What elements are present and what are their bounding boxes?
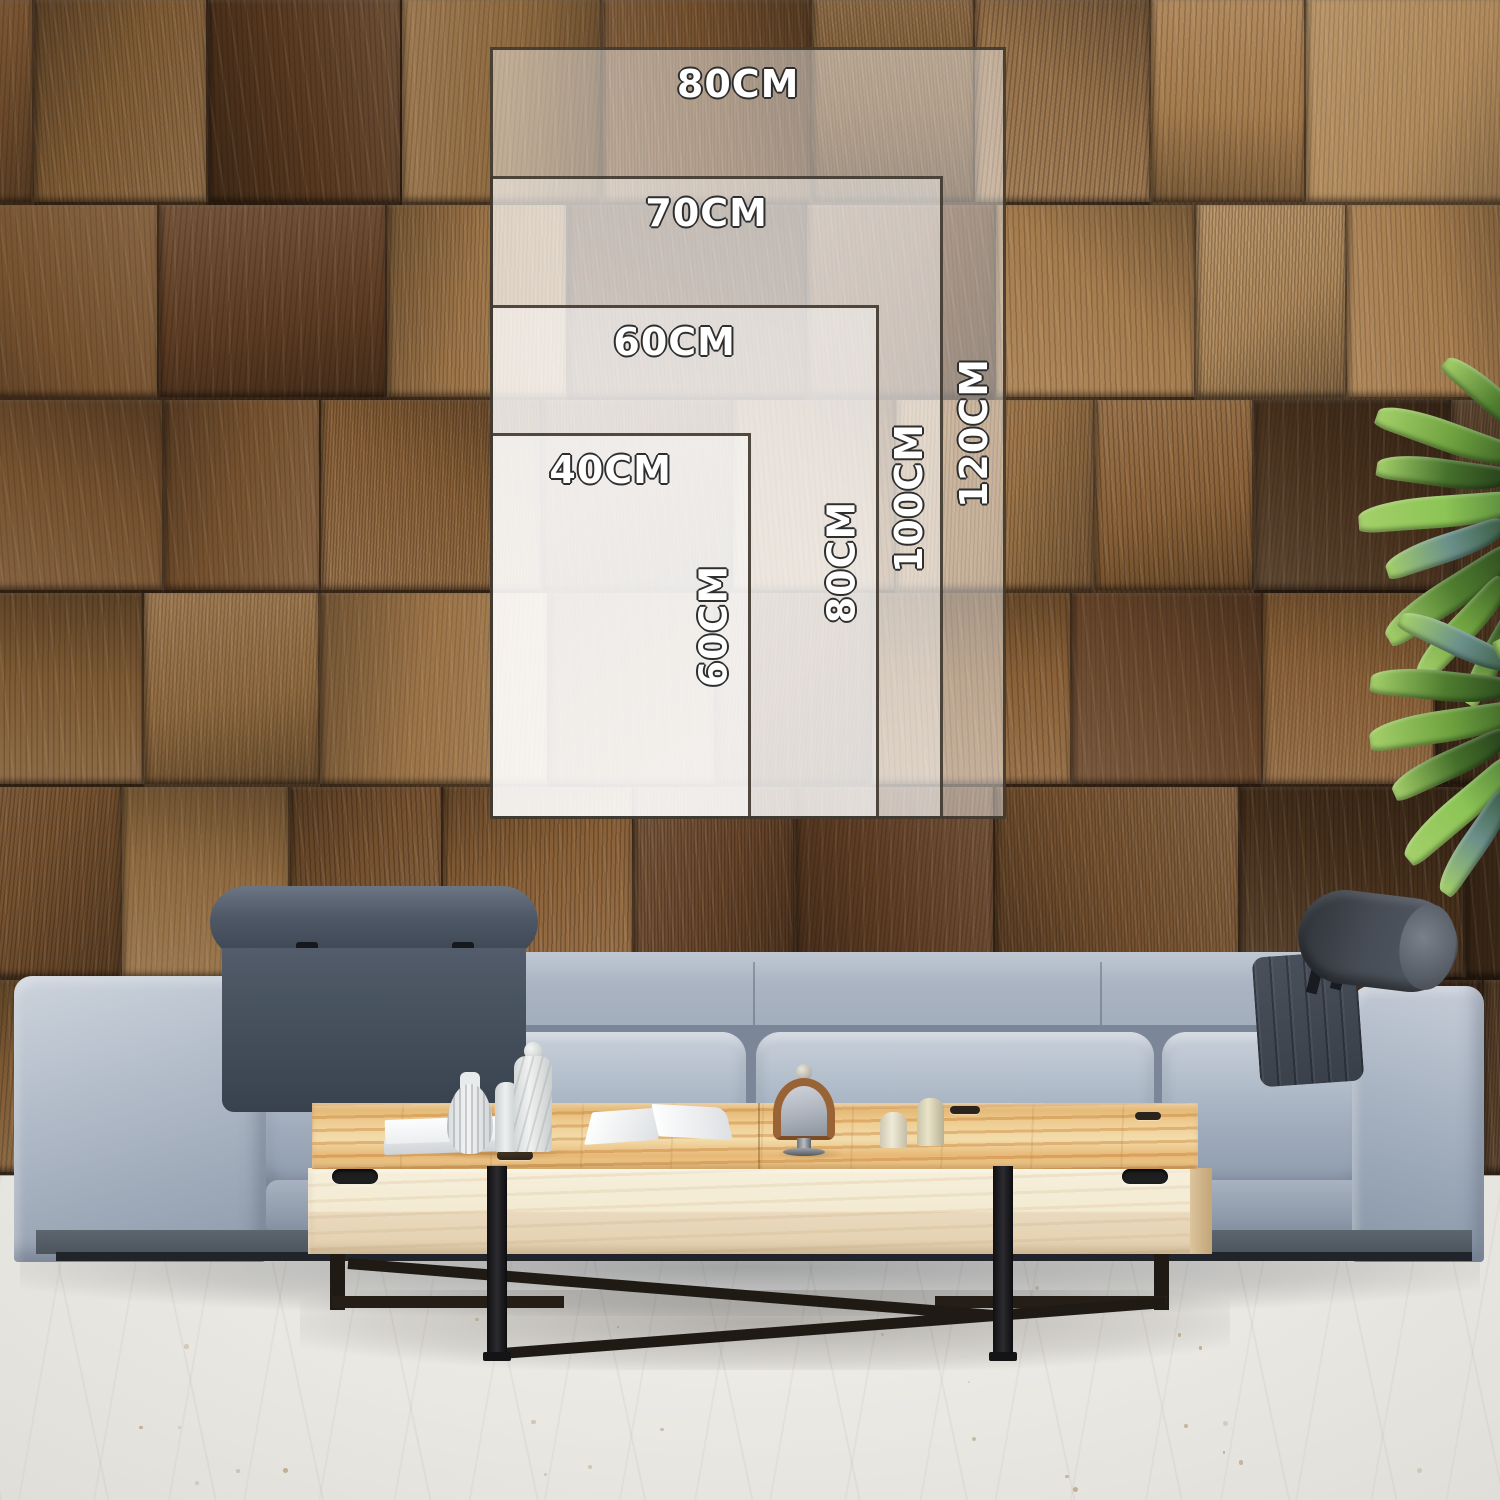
wood-block (733, 400, 897, 593)
living-room-size-guide-photo: 80CM 120CM 70CM 100CM 60CM 80CM 40CM 60C… (0, 0, 1500, 1500)
floor-speckle (1417, 1468, 1422, 1473)
wood-block (542, 400, 732, 593)
table-leg-post (487, 1166, 507, 1356)
table-top-seam (758, 1103, 760, 1169)
wood-block (164, 400, 322, 593)
floor-speckle (178, 1426, 181, 1429)
table-leg-foot (989, 1352, 1017, 1361)
floor-speckle (1223, 1421, 1228, 1426)
wood-block (1072, 593, 1262, 787)
floor-speckle (544, 1473, 547, 1476)
wood-block (1095, 400, 1253, 593)
wood-block (144, 593, 320, 787)
headrest-roll-endcap (1395, 901, 1461, 993)
table-handle (332, 1169, 378, 1184)
wood-block (320, 593, 549, 787)
floor-speckle (1223, 1451, 1226, 1454)
floor-speckle (972, 1437, 976, 1441)
wood-block (812, 0, 976, 205)
floor-speckle (588, 1465, 592, 1469)
floor-speckle (1073, 1487, 1078, 1492)
wood-block (549, 593, 715, 787)
floor-speckle (1065, 1475, 1068, 1478)
table-top-slot (950, 1106, 980, 1114)
wood-block (321, 400, 542, 593)
floor-speckle (531, 1420, 535, 1424)
table-top-slot (497, 1151, 533, 1160)
floor-speckle (1239, 1460, 1244, 1465)
wood-block (0, 593, 144, 787)
wood-block (602, 0, 812, 205)
floor-speckle (236, 1469, 240, 1473)
table-handle (1122, 1169, 1168, 1184)
floor-speckle (195, 1481, 199, 1485)
wood-block (872, 593, 1073, 787)
wood-block (896, 400, 1095, 593)
wood-block (0, 0, 34, 205)
wood-block (996, 205, 1197, 400)
potted-plant (1310, 405, 1500, 825)
floor-speckle (139, 1426, 143, 1430)
table-side-panel (1190, 1168, 1212, 1254)
wood-block (568, 205, 807, 400)
wood-block (34, 0, 208, 205)
table-top-slot (1135, 1112, 1161, 1120)
wood-block (402, 0, 601, 205)
table-cross-bar (348, 1258, 1012, 1322)
table-front-panel (308, 1168, 1212, 1254)
wood-block (1196, 205, 1347, 400)
floor-speckle (283, 1468, 288, 1473)
floor-speckle (1184, 1424, 1188, 1428)
wood-block (1306, 0, 1500, 205)
wood-coffee-table (0, 1000, 1500, 1400)
wood-block (0, 400, 164, 593)
table-leg-foot (483, 1352, 511, 1361)
wood-block (807, 205, 996, 400)
wood-block (716, 593, 872, 787)
wood-block (1151, 0, 1306, 205)
table-runner (332, 1296, 564, 1308)
floor-speckle (660, 1428, 663, 1431)
wood-block (159, 205, 386, 400)
wood-block (975, 0, 1150, 205)
wood-block (0, 205, 159, 400)
wood-block (387, 205, 569, 400)
wood-block (208, 0, 403, 205)
table-top-surface (312, 1103, 1198, 1169)
table-leg-post (993, 1166, 1013, 1356)
